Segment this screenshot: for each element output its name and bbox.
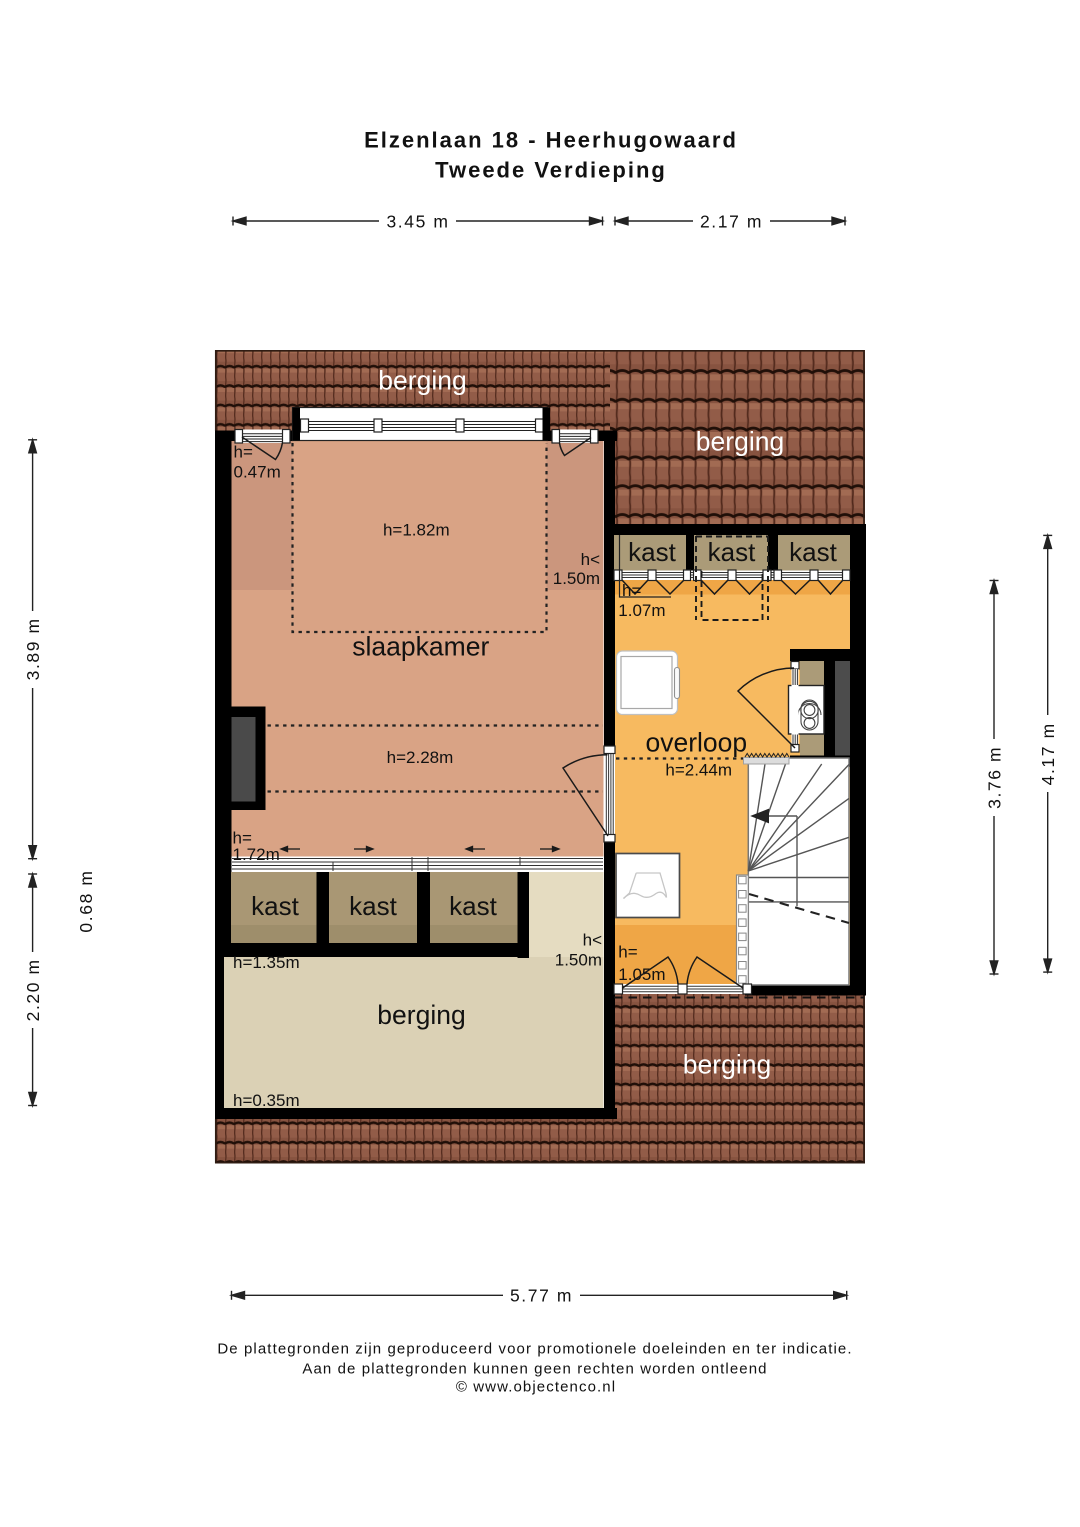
svg-text:kast: kast bbox=[349, 891, 397, 921]
svg-text:© www.objectenco.nl: © www.objectenco.nl bbox=[456, 1379, 616, 1396]
svg-text:berging: berging bbox=[696, 427, 784, 457]
svg-text:kast: kast bbox=[708, 537, 756, 567]
svg-text:h=2.28m: h=2.28m bbox=[387, 748, 454, 767]
svg-text:1.07m: 1.07m bbox=[618, 601, 665, 620]
svg-text:Tweede Verdieping: Tweede Verdieping bbox=[435, 157, 667, 182]
svg-text:kast: kast bbox=[251, 891, 299, 921]
svg-text:0.68 m: 0.68 m bbox=[76, 869, 96, 932]
svg-text:3.76 m: 3.76 m bbox=[984, 746, 1004, 809]
svg-text:h=0.35m: h=0.35m bbox=[233, 1091, 300, 1110]
svg-text:2.20 m: 2.20 m bbox=[23, 958, 43, 1021]
svg-text:h<: h< bbox=[581, 550, 600, 569]
svg-text:De plattegronden zijn geproduc: De plattegronden zijn geproduceerd voor … bbox=[217, 1341, 852, 1358]
svg-text:5.77 m: 5.77 m bbox=[510, 1286, 573, 1306]
svg-text:3.89 m: 3.89 m bbox=[23, 617, 43, 680]
svg-text:2.17 m: 2.17 m bbox=[700, 212, 763, 232]
svg-text:berging: berging bbox=[378, 366, 466, 396]
svg-text:h=: h= bbox=[618, 943, 637, 962]
svg-text:berging: berging bbox=[377, 1000, 465, 1030]
svg-text:h=2.44m: h=2.44m bbox=[665, 761, 732, 780]
svg-text:4.17 m: 4.17 m bbox=[1038, 722, 1058, 785]
svg-text:kast: kast bbox=[789, 537, 837, 567]
svg-text:h<: h< bbox=[583, 931, 602, 950]
svg-text:1.50m: 1.50m bbox=[555, 951, 602, 970]
svg-text:h=1.82m: h=1.82m bbox=[383, 521, 450, 540]
svg-text:h=: h= bbox=[622, 581, 641, 600]
svg-text:1.72m: 1.72m bbox=[233, 845, 280, 864]
svg-text:h=1.35m: h=1.35m bbox=[233, 953, 300, 972]
svg-text:Elzenlaan 18 - Heerhugowaard: Elzenlaan 18 - Heerhugowaard bbox=[364, 127, 738, 152]
svg-text:h=: h= bbox=[234, 443, 253, 462]
svg-text:3.45 m: 3.45 m bbox=[386, 212, 449, 232]
svg-text:Aan de plattegronden kunnen ge: Aan de plattegronden kunnen geen rechten… bbox=[302, 1361, 767, 1378]
svg-text:overloop: overloop bbox=[645, 728, 747, 758]
svg-text:1.50m: 1.50m bbox=[553, 569, 600, 588]
svg-text:berging: berging bbox=[683, 1050, 771, 1080]
svg-text:kast: kast bbox=[449, 891, 497, 921]
svg-text:slaapkamer: slaapkamer bbox=[352, 632, 489, 662]
svg-text:kast: kast bbox=[628, 537, 676, 567]
svg-text:0.47m: 0.47m bbox=[234, 463, 281, 482]
